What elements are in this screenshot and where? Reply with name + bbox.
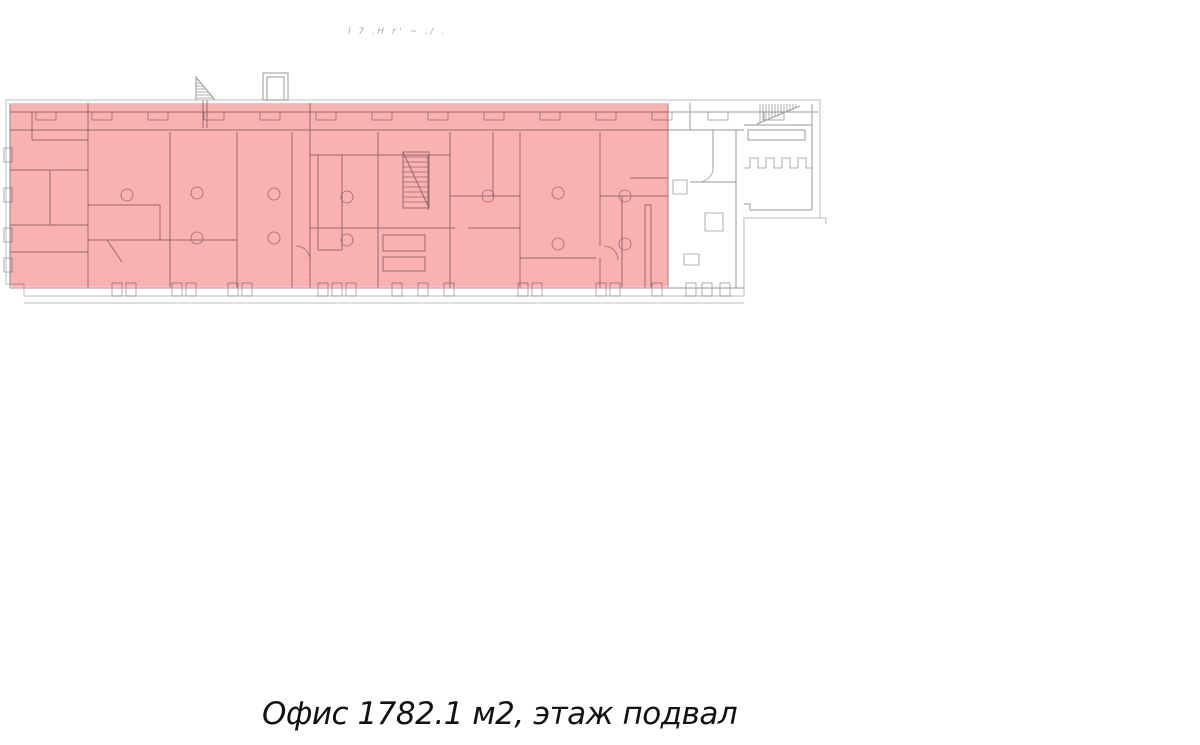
floor-plan-page: l 7 .Н г' ~ ./ . xyxy=(0,0,1200,745)
basement-floor-plan xyxy=(0,0,1200,745)
highlight-overlay xyxy=(10,103,668,287)
plan-caption: Офис 1782.1 м2, этаж подвал xyxy=(262,696,737,732)
